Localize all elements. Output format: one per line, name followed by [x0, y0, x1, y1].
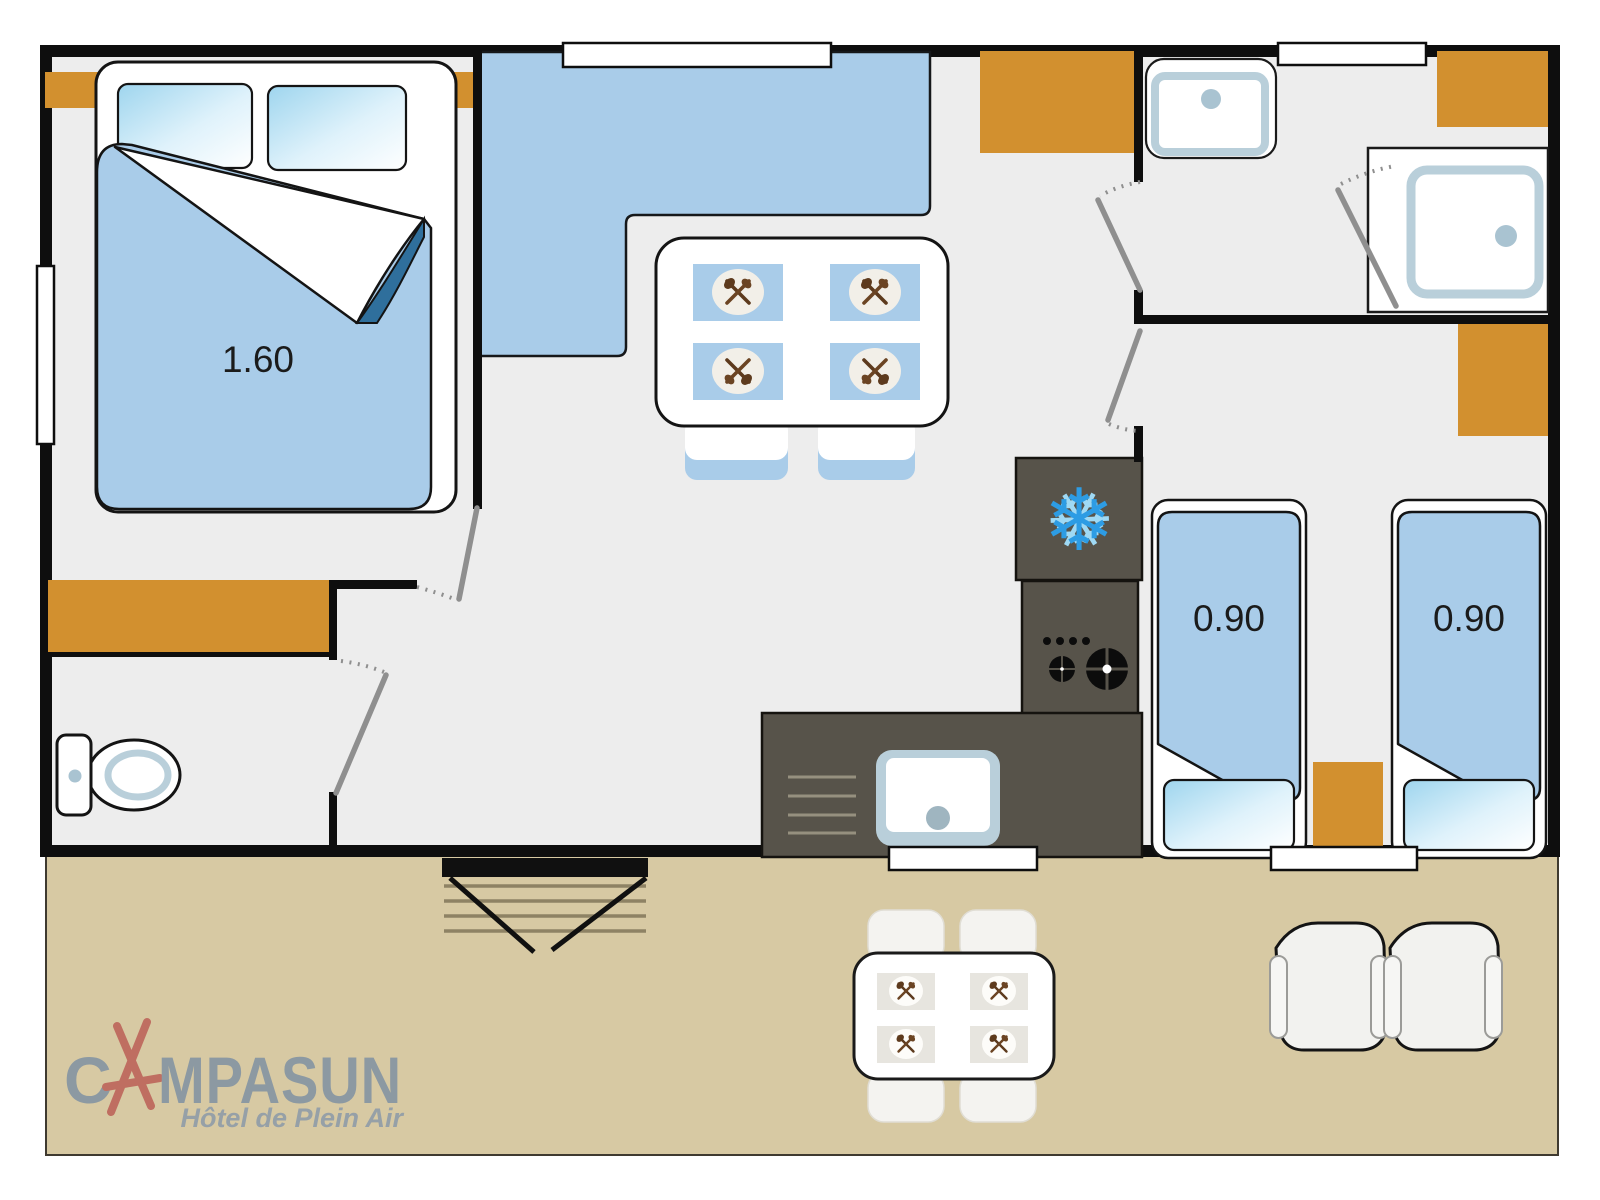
window [1271, 847, 1417, 870]
bedroom2-nightstand [1313, 762, 1383, 854]
flush-button [69, 770, 82, 783]
twin-bed-left-width-label: 0.90 [1193, 598, 1265, 639]
logo-text-c: C [64, 1043, 113, 1117]
window [889, 847, 1037, 870]
bedroom1-wardrobe [48, 580, 329, 654]
bathroom-wardrobe [1437, 51, 1548, 127]
wardrobe-edge [48, 652, 337, 657]
living-cabinet [980, 51, 1140, 153]
shower-tray [1411, 170, 1539, 294]
snowflake-icon: ❄ [1043, 471, 1115, 571]
floorplan-page: C MPASUN Hôtel de Plein Air [0, 0, 1600, 1200]
window [563, 43, 831, 67]
shower-drain [1495, 225, 1517, 247]
washbasin [1155, 76, 1265, 152]
sink-drain [926, 806, 950, 830]
lounge-chair [1384, 923, 1502, 1050]
pillow [268, 86, 406, 170]
double-bed: 1.60 [96, 62, 456, 512]
terrace: C MPASUN Hôtel de Plein Air [46, 855, 1558, 1155]
double-bed-width-label: 1.60 [222, 339, 294, 380]
logo-tagline: Hôtel de Plein Air [180, 1103, 404, 1133]
twin-bed-right [1392, 500, 1546, 858]
twin-bed-left [1152, 500, 1306, 858]
entrance-threshold [442, 858, 648, 877]
window [1278, 43, 1426, 65]
mobile-home-floorplan: C MPASUN Hôtel de Plein Air [0, 0, 1600, 1200]
washbasin-faucet [1201, 89, 1221, 109]
twin-bed-right-width-label: 0.90 [1433, 598, 1505, 639]
window [37, 266, 54, 444]
stove [1022, 581, 1138, 714]
bedroom2-wardrobe [1458, 324, 1548, 436]
toilet [57, 735, 180, 815]
lounge-chair [1270, 923, 1388, 1050]
